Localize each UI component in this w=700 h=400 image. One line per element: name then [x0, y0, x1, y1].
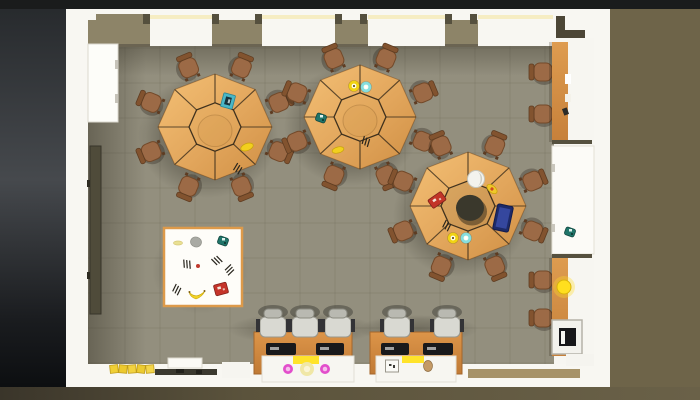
- round-item-center: [286, 367, 291, 372]
- left-fixtures: [115, 94, 118, 103]
- floor-shadow-top: [88, 46, 554, 76]
- corner-pillar: [565, 30, 585, 38]
- table-center-circle: [198, 115, 232, 147]
- pillar-notch: [255, 14, 262, 24]
- chair-armrest: [288, 319, 292, 332]
- octagon-table-1: [158, 74, 272, 180]
- monitor-glint: [427, 347, 436, 350]
- bottom-shelf: [468, 369, 580, 378]
- chair-seat: [292, 317, 318, 337]
- chair-headrest: [264, 309, 282, 318]
- window-sunlight: [478, 15, 553, 19]
- counter-divider: [552, 254, 592, 258]
- wall-pillar: [445, 20, 478, 47]
- wall-pillar: [88, 20, 150, 47]
- desk-lamp: [557, 280, 571, 294]
- round-item: [196, 264, 200, 268]
- board-bracket: [87, 272, 90, 279]
- bottom-shelf: [110, 365, 119, 374]
- monitor-glint: [385, 347, 394, 350]
- shelf-box: [168, 358, 202, 368]
- classroom-top-view-render: [0, 0, 700, 400]
- marks-prop: [182, 260, 191, 269]
- left-fixtures: [115, 60, 118, 69]
- left-fixtures: [87, 272, 90, 279]
- pillar-notch: [212, 14, 219, 24]
- blob: [424, 361, 433, 372]
- chair-headrest: [388, 309, 406, 318]
- strip-prop: [402, 356, 424, 363]
- chair-armrest: [256, 319, 260, 332]
- yellow-book: [146, 365, 155, 374]
- bottom-shelf: [155, 369, 217, 375]
- banana-tip: [189, 291, 191, 293]
- chair-armrest: [410, 319, 414, 332]
- donut-prop: [461, 233, 472, 244]
- top-dark-band: [0, 0, 700, 9]
- white-cube: [386, 360, 399, 372]
- blob-prop: [424, 361, 433, 372]
- wall-pillar: [212, 20, 262, 47]
- corner-shelf: [566, 354, 594, 366]
- yellow-book: [137, 365, 146, 374]
- shelf-strip: [155, 369, 217, 375]
- table-hole: [456, 195, 484, 221]
- yellow-book: [110, 365, 119, 374]
- clump-fleck: [569, 229, 572, 232]
- cube-mark: [389, 364, 392, 366]
- dot-prop: [300, 362, 314, 376]
- left-fixtures: [87, 180, 90, 187]
- monitor-glint: [320, 347, 329, 350]
- monitor-glint: [270, 347, 279, 350]
- donut-dot: [465, 237, 467, 239]
- bottom-shelf: [176, 369, 184, 373]
- pillar-notch: [470, 14, 477, 24]
- counter-paper: [565, 94, 571, 102]
- dot-prop: [283, 364, 293, 374]
- chair-armrest: [321, 319, 325, 332]
- printer-slot: [561, 331, 565, 344]
- wall-pillar: [335, 20, 368, 47]
- pillar-notch: [143, 14, 150, 24]
- bottom-shelf: [168, 358, 202, 368]
- office-chair: [430, 305, 464, 337]
- donut-prop: [448, 233, 459, 244]
- dot-prop: [196, 264, 200, 268]
- bottom-shelf: [146, 365, 155, 374]
- cube-mark: [393, 365, 395, 368]
- bottom-shelf: [222, 362, 250, 378]
- globe-prop: [468, 171, 485, 188]
- left-fixtures: [90, 146, 101, 314]
- chair-back: [529, 64, 534, 80]
- chair-seat: [260, 317, 286, 337]
- pillar-notch: [445, 14, 452, 24]
- chair-armrest: [430, 319, 434, 332]
- soft-shadows: [88, 46, 554, 76]
- background: [0, 0, 700, 9]
- donut-prop: [361, 82, 372, 93]
- yellow-book: [119, 365, 128, 374]
- chair-seat: [325, 317, 351, 337]
- bottom-shelf: [119, 365, 128, 374]
- corner-pillar: [556, 16, 565, 38]
- chair-headrest: [329, 309, 347, 318]
- shelf-item: [176, 369, 184, 373]
- scene-layers: [0, 0, 700, 400]
- clump-fleck: [222, 238, 225, 241]
- background: [0, 387, 700, 400]
- pillar-notch: [360, 14, 367, 24]
- side-table-handle: [552, 164, 555, 172]
- wall-board: [90, 146, 101, 314]
- pillar-notch: [335, 14, 342, 24]
- clump-dot: [571, 233, 573, 235]
- wall-pillar-edge: [335, 44, 368, 47]
- office-chair: [256, 305, 290, 337]
- chair-back: [529, 310, 534, 326]
- chair-seat: [384, 317, 410, 337]
- donut-dot: [452, 237, 454, 239]
- chair-seat: [434, 317, 460, 337]
- chair-armrest: [460, 319, 464, 332]
- yellow-book: [128, 365, 137, 374]
- left-fixtures: [88, 44, 118, 122]
- donut-dot: [353, 85, 355, 87]
- cube-prop: [386, 360, 399, 372]
- floor-plan-svg: [0, 0, 700, 400]
- counter-divider: [552, 140, 592, 144]
- office-chair: [321, 305, 355, 337]
- left-cabinet: [88, 44, 118, 122]
- chair-headrest: [296, 309, 314, 318]
- wood-counter-top: [552, 42, 568, 142]
- clump-dot: [224, 242, 226, 244]
- round-item-center: [304, 366, 310, 372]
- window-sunlight: [150, 15, 212, 19]
- yellow-strip: [402, 356, 424, 363]
- window-sunlight: [262, 15, 335, 19]
- clump-fleck: [320, 115, 323, 118]
- office-chair: [380, 305, 414, 337]
- activity-mat: [164, 228, 242, 306]
- banana-tip: [204, 290, 206, 292]
- blob-prop: [174, 241, 183, 245]
- bottom-shelf: [137, 365, 146, 374]
- board-bracket: [87, 180, 90, 187]
- donut-dot: [365, 86, 367, 88]
- clump-dot: [322, 119, 324, 121]
- cabinet-handle: [115, 60, 118, 69]
- table-center-circle: [343, 105, 377, 137]
- shelf-item: [196, 370, 202, 374]
- bottom-ground-band: [0, 387, 700, 400]
- entry-mat: [468, 369, 580, 378]
- dot-prop: [320, 364, 330, 374]
- outside-shadow-left: [0, 0, 66, 400]
- wall-pillar-edge: [445, 44, 478, 47]
- chair-back: [529, 106, 534, 122]
- chair-armrest: [351, 319, 355, 332]
- side-table-handle: [552, 224, 555, 232]
- window-sunlight: [368, 15, 445, 19]
- cabinet-handle: [115, 94, 118, 103]
- white-side-table: [552, 146, 594, 254]
- wall-pillar-edge: [212, 44, 262, 47]
- donut-prop: [349, 81, 360, 92]
- bottom-shelf: [128, 365, 137, 374]
- wall-ledge: [222, 362, 250, 378]
- background: [0, 0, 66, 400]
- chair-armrest: [380, 319, 384, 332]
- chair-back: [529, 272, 534, 288]
- bottom-shelf: [196, 370, 202, 374]
- office-chair: [288, 305, 322, 337]
- counter-paper: [565, 74, 571, 84]
- round-item-center: [323, 367, 328, 372]
- blob: [174, 241, 183, 245]
- chair-headrest: [438, 309, 456, 318]
